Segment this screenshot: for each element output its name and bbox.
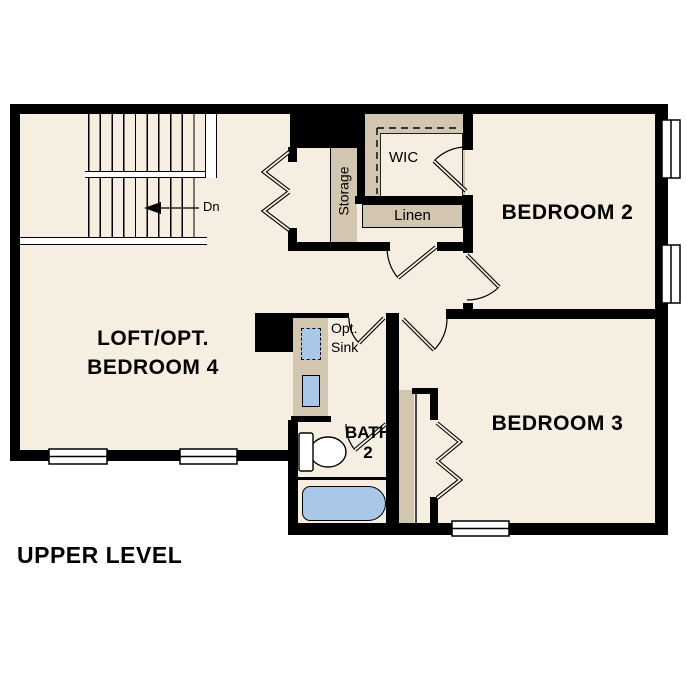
loft-label: LOFT/OPT.BEDROOM 4 [33, 324, 273, 382]
stairs-down-arrow [144, 202, 199, 214]
wic-label: WIC [389, 149, 418, 166]
hall-door-arc [387, 247, 398, 278]
linen-label: Linen [362, 207, 463, 224]
stairs-dn-label: Dn [203, 199, 220, 214]
bedroom3-door-arc [434, 319, 447, 350]
bedroom2-label: BEDROOM 2 [460, 201, 675, 225]
opt-sink-label: Opt.Sink [331, 319, 358, 357]
bedroom3-label: BEDROOM 3 [450, 412, 665, 436]
storage-label: Storage [336, 144, 352, 239]
wic-door-arc [434, 147, 466, 161]
floorplan-canvas: LOFT/OPT.BEDROOM 4 BEDROOM 2 BEDROOM 3 B… [0, 0, 687, 687]
plan-title: UPPER LEVEL [17, 542, 182, 569]
bedroom2-door-arc [467, 287, 499, 300]
bath-label: BATH2 [330, 423, 406, 463]
